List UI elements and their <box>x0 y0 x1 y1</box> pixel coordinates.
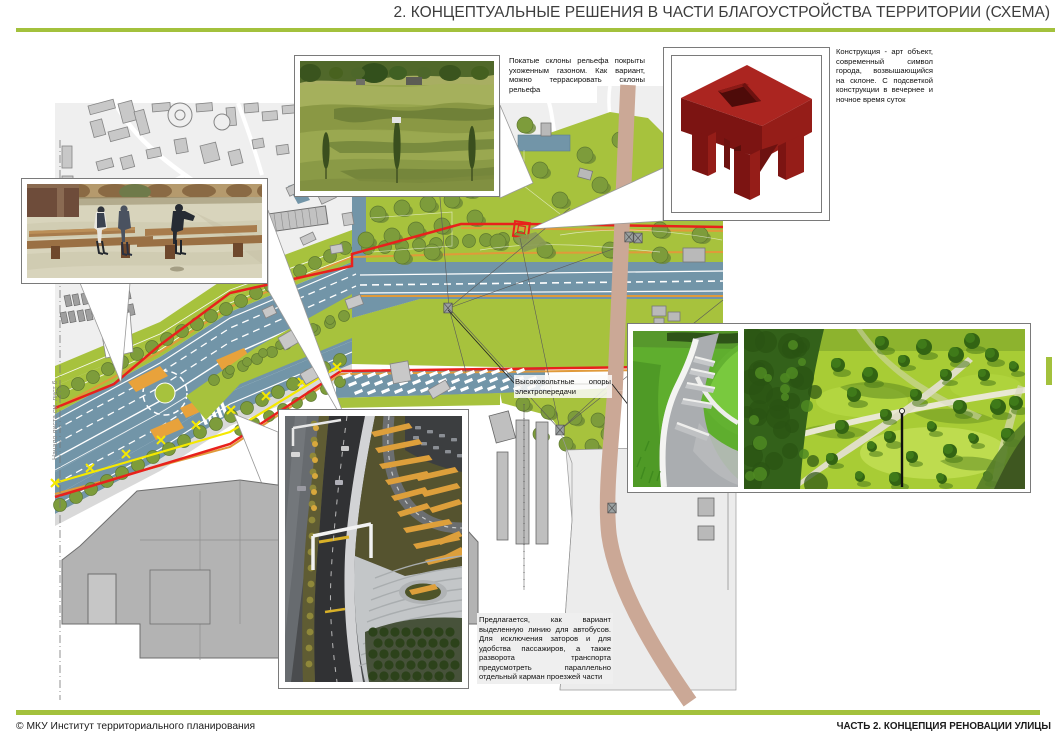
svg-text:Начало листа см. лист 6: Начало листа см. лист 6 <box>52 380 59 460</box>
